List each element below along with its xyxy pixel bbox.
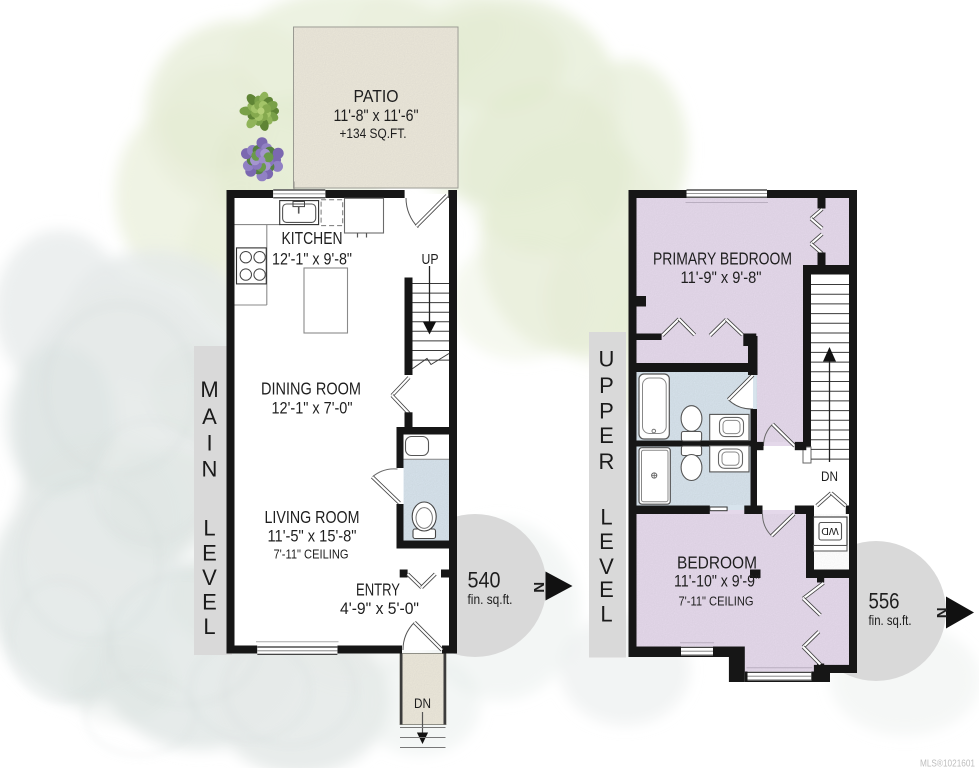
svg-text:UP: UP	[422, 252, 439, 268]
svg-text:V: V	[202, 565, 217, 590]
svg-text:4'-9" x 5'-0": 4'-9" x 5'-0"	[340, 600, 419, 618]
svg-text:L: L	[600, 601, 612, 626]
svg-text:11'-10" x 9'-9": 11'-10" x 9'-9"	[674, 573, 760, 591]
svg-text:LIVING ROOM: LIVING ROOM	[265, 507, 360, 527]
svg-text:E: E	[599, 423, 614, 448]
svg-text:M: M	[200, 377, 218, 402]
svg-text:fin. sq.ft.: fin. sq.ft.	[468, 591, 513, 607]
svg-text:R: R	[599, 449, 615, 474]
svg-text:12'-1" x 7'-0": 12'-1" x 7'-0"	[272, 400, 353, 418]
svg-text:E: E	[599, 577, 614, 602]
svg-text:ENTRY: ENTRY	[356, 580, 400, 600]
svg-text:N: N	[933, 607, 950, 618]
svg-text:DN: DN	[414, 696, 431, 711]
svg-text:N: N	[530, 582, 547, 593]
svg-text:I: I	[206, 430, 212, 455]
svg-text:+134 SQ.FT.: +134 SQ.FT.	[340, 126, 407, 141]
svg-text:E: E	[202, 540, 217, 565]
svg-text:PATIO: PATIO	[354, 86, 399, 106]
svg-text:7'-11" CEILING: 7'-11" CEILING	[679, 594, 754, 609]
svg-text:N: N	[202, 456, 218, 481]
svg-text:MLS®1021601: MLS®1021601	[920, 759, 975, 768]
svg-text:BEDROOM: BEDROOM	[677, 553, 757, 573]
svg-text:WD: WD	[821, 525, 839, 537]
svg-text:12'-1" x 9'-8": 12'-1" x 9'-8"	[272, 251, 352, 269]
svg-text:PRIMARY BEDROOM: PRIMARY BEDROOM	[653, 249, 792, 269]
svg-text:P: P	[599, 373, 614, 398]
svg-text:A: A	[202, 404, 217, 429]
svg-text:fin. sq.ft.: fin. sq.ft.	[869, 612, 912, 628]
svg-text:L: L	[203, 515, 215, 540]
svg-text:DN: DN	[821, 469, 838, 484]
svg-text:V: V	[599, 554, 614, 579]
svg-text:E: E	[202, 589, 217, 614]
svg-text:KITCHEN: KITCHEN	[282, 228, 343, 248]
svg-text:540: 540	[468, 568, 501, 593]
svg-text:DINING ROOM: DINING ROOM	[261, 379, 361, 399]
svg-text:11'-5" x 15'-8": 11'-5" x 15'-8"	[268, 528, 357, 546]
svg-text:11'-9" x 9'-8": 11'-9" x 9'-8"	[681, 269, 762, 287]
svg-text:L: L	[600, 504, 612, 529]
svg-text:556: 556	[869, 589, 900, 614]
svg-text:E: E	[599, 529, 614, 554]
svg-text:P: P	[599, 398, 614, 423]
svg-text:U: U	[599, 346, 615, 371]
svg-text:7'-11" CEILING: 7'-11" CEILING	[274, 547, 349, 562]
svg-text:L: L	[203, 614, 215, 639]
svg-text:11'-8" x 11'-6": 11'-8" x 11'-6"	[334, 107, 419, 125]
